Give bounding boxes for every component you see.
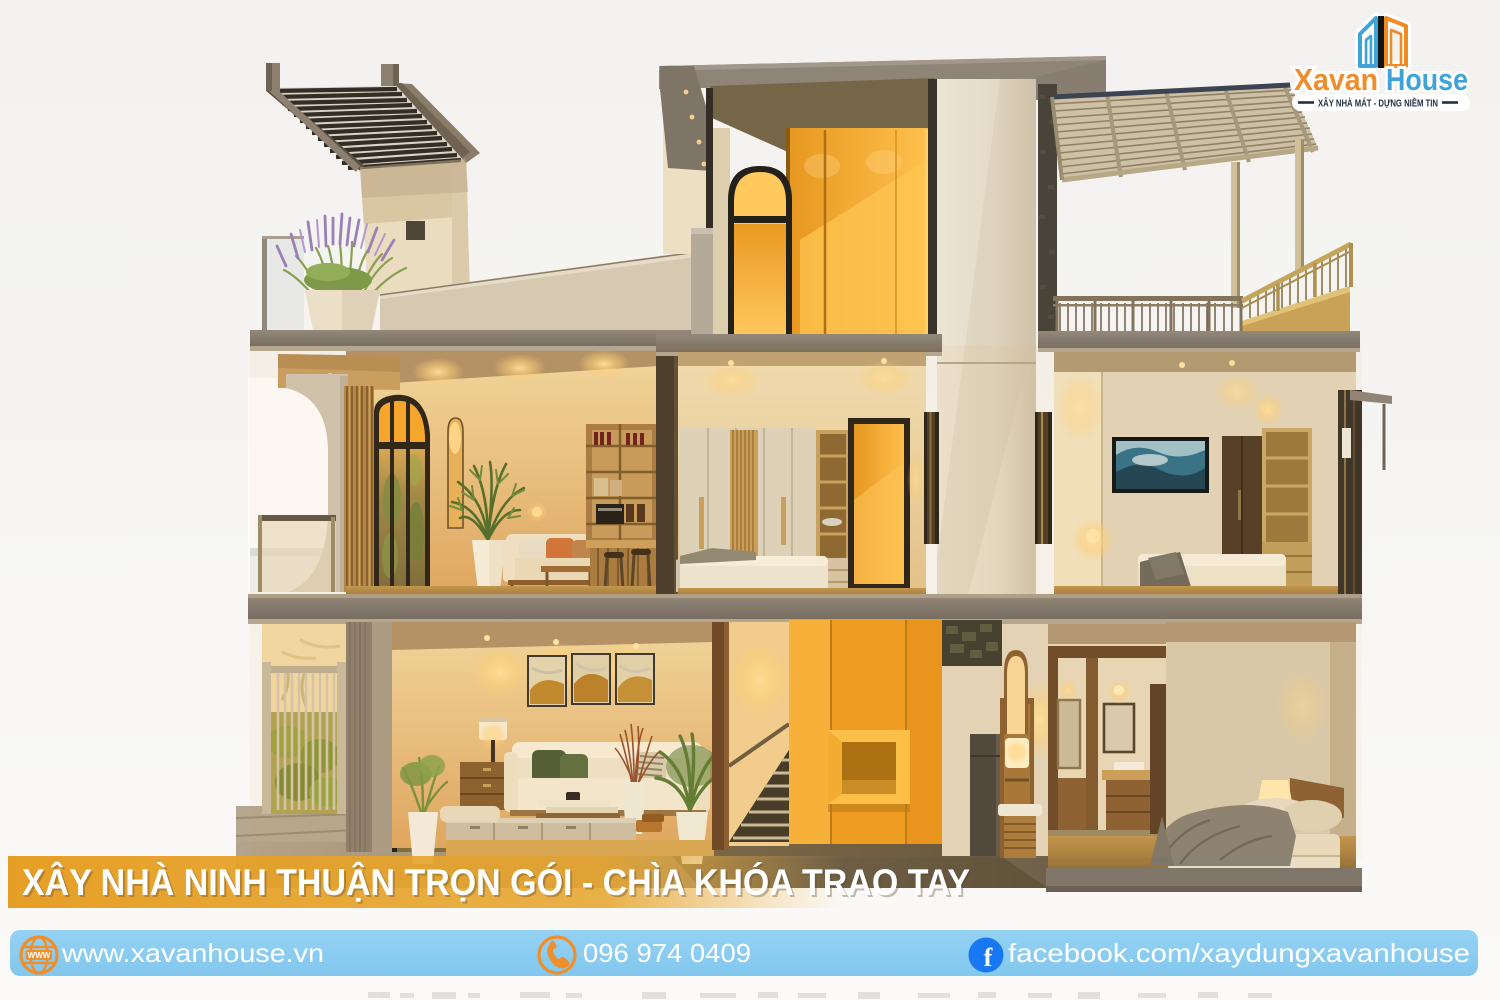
svg-text:096 974 0409: 096 974 0409 xyxy=(583,938,751,968)
svg-text:facebook.com/xaydungxavanhouse: facebook.com/xaydungxavanhouse xyxy=(1008,938,1470,968)
svg-text:House: House xyxy=(1386,62,1468,97)
svg-text:XÂY NHÀ MÁT - DỰNG NIỀM TIN: XÂY NHÀ MÁT - DỰNG NIỀM TIN xyxy=(1318,97,1438,110)
svg-text:f: f xyxy=(984,943,993,972)
svg-text:www.xavanhouse.vn: www.xavanhouse.vn xyxy=(61,938,324,968)
svg-text:Xavan: Xavan xyxy=(1294,62,1378,97)
svg-text:XÂY NHÀ NINH THUẬN TRỌN GÓI -: XÂY NHÀ NINH THUẬN TRỌN GÓI - CHÌA KHÓA … xyxy=(22,861,970,903)
svg-text:WWW: WWW xyxy=(28,951,51,960)
